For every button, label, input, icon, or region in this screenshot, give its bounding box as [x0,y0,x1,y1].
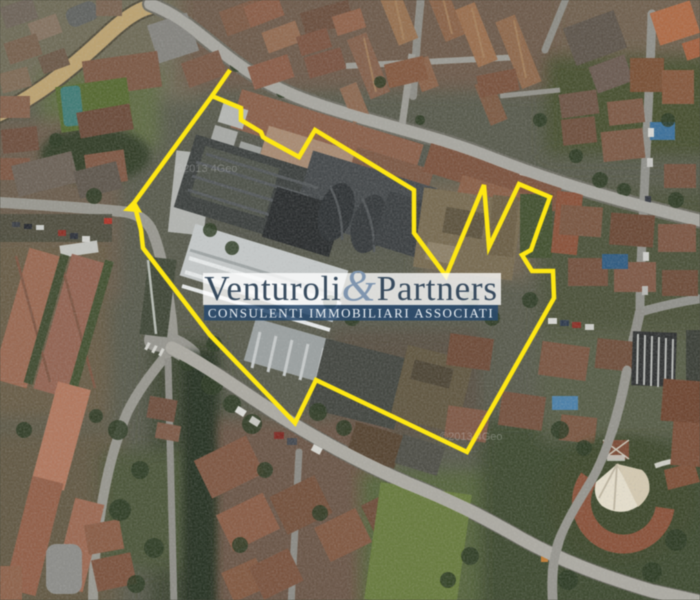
svg-text:CONSULENTI IMMOBILIARI ASSOCIA: CONSULENTI IMMOBILIARI ASSOCIATI [208,306,494,321]
svg-text:©2013 4Geo: ©2013 4Geo [440,431,503,443]
svg-text:Venturoli&Partners: Venturoli&Partners [204,261,498,310]
svg-text:©2013 4Geo: ©2013 4Geo [175,163,238,175]
